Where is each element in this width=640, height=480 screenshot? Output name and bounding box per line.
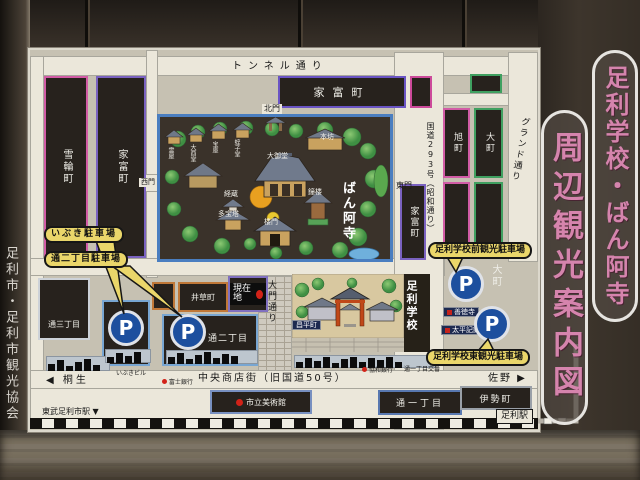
street-label-route293: 国道293号（昭和通り）	[426, 122, 434, 292]
museum-marker-icon	[236, 399, 243, 406]
parking-icon-school-front: P	[448, 266, 484, 302]
block-small-green-top	[470, 74, 502, 93]
parking-icon-ibuki: P	[108, 310, 144, 346]
direction-kiryu: ◀ 桐生	[46, 376, 89, 386]
current-location-dot-icon	[256, 290, 263, 299]
district-label-yadomi-right: 家富町	[409, 206, 418, 239]
temple-label-hoko: 宝庫	[211, 141, 217, 153]
jr-station-label: 足利駅	[496, 409, 533, 424]
temple-marker-icon	[447, 310, 452, 315]
district-label-tori1: 通一丁目	[396, 396, 444, 409]
ibuki-building-label: いぶきビル	[116, 371, 146, 377]
zentokuji-label: 善徳寺	[454, 308, 475, 316]
parking-symbol: P	[459, 272, 474, 296]
temple-label-kyozo: 経蔵	[224, 189, 238, 199]
block-small-orange	[152, 282, 175, 310]
block-igusa-cho: 井草町	[178, 282, 228, 312]
landmark-marker-icon	[445, 328, 450, 333]
temple-name-label: ばん阿寺	[341, 181, 354, 241]
temple-illustration	[160, 117, 390, 259]
cityscape-strip	[166, 350, 258, 364]
direction-sano: 佐野 ▶	[488, 374, 527, 384]
kyowa-bank-text: 協和銀行	[369, 367, 393, 374]
plank-gap	[298, 0, 301, 50]
kyowa-bank-label: 協和銀行	[362, 367, 393, 374]
title-pill-sub: 周辺観光案内図	[541, 110, 588, 425]
district-label-yadomi-top: 家富町	[314, 84, 371, 100]
koban-label: 通一丁目交番	[404, 367, 440, 373]
plank-gap	[85, 0, 88, 50]
district-label-yukiwa: 雪輪町	[61, 149, 71, 185]
parking-symbol: P	[485, 312, 500, 336]
district-label-igusa: 井草町	[191, 292, 215, 303]
parking-icon-school-east: P	[474, 306, 510, 342]
parking-icon-tori2: P	[170, 314, 206, 350]
cityscape-strip	[46, 356, 110, 371]
callout-tori2-parking: 通二丁目駐車場	[44, 251, 128, 268]
temple-label-belfry: 鐘楼	[308, 187, 322, 197]
school-name-label: 足利学校	[406, 280, 417, 346]
temple-precinct-bannaji: ばん阿寺 本坊 大御堂 鐘楼 経蔵 多宝塔 楼門 霊屋 大酉堂 宝庫 蛭子堂	[157, 114, 393, 262]
signboard-photo: 足利市・足利市観光協会 トンネル通り 国道293号（昭和通り） グランド通り 大…	[0, 0, 640, 480]
block-asahi-cho: 旭町	[443, 108, 470, 178]
zentokuji-chip: 善徳寺	[443, 307, 479, 317]
district-label-yadomi-left: 家富町	[116, 149, 126, 185]
street-label-chuo: 中央商店街（旧国道50号）	[198, 374, 347, 384]
temple-label-tahoto: 多宝塔	[218, 209, 239, 219]
block-current-location: 現在地	[228, 276, 268, 312]
museum-label: 市立美術館	[246, 397, 286, 408]
plank-gap	[462, 0, 465, 50]
current-location-label: 現在地	[233, 285, 253, 303]
railway-line	[30, 418, 538, 429]
title-pill-main: 足利学校・ばん阿寺	[592, 50, 638, 322]
parking-symbol: P	[119, 316, 134, 340]
temple-label-romon: 楼門	[264, 217, 278, 227]
block-tori-3chome: 通三丁目	[38, 278, 90, 340]
sign-title-main: 足利学校・ばん阿寺	[603, 65, 627, 308]
temple-label-mitamaya: 霊屋	[167, 147, 173, 159]
temple-label-main-hall: 大御堂	[267, 151, 288, 161]
temple-label-hirukodo: 蛭子堂	[233, 139, 239, 157]
block-small-pink-top	[410, 76, 432, 108]
district-label-tori2: 通二丁目	[208, 331, 248, 344]
temple-label-otorido: 大酉堂	[189, 144, 195, 162]
wood-ledge-bottom	[0, 430, 640, 480]
bank-marker-icon	[362, 367, 367, 372]
bank-marker-icon	[162, 379, 167, 384]
parking-symbol: P	[181, 320, 196, 344]
publisher-vertical-text: 足利市・足利市観光協会	[4, 246, 17, 446]
callout-school-front-parking: 足利学校前観光駐車場	[428, 242, 532, 259]
gate-label-east: 東門	[396, 182, 412, 190]
block-tori-1chome: 通一丁目	[378, 390, 462, 415]
block-yadomi-cho-top: 家富町	[278, 76, 406, 108]
block-omachi: 大町	[474, 108, 503, 178]
block-ise-cho: 伊勢町	[460, 386, 532, 410]
school-block-ashikaga-gakko: 足利学校	[292, 274, 430, 352]
district-label-ise: 伊勢町	[479, 392, 512, 405]
district-label-shohei: 昌平町	[296, 321, 317, 329]
fuji-bank-label: 富士銀行	[162, 379, 193, 386]
block-city-museum: 市立美術館	[210, 390, 312, 414]
tobu-station-label: 東武足利市駅 ▼	[42, 408, 99, 416]
block-yadomi-cho-right: 家富町	[400, 184, 426, 260]
gate-label-west: 西門	[139, 178, 157, 187]
district-label-omachi: 大町	[484, 132, 493, 154]
sign-title-sub: 周辺観光案内図	[549, 131, 580, 404]
temple-label-hombo: 本坊	[320, 132, 334, 142]
current-location-marker: 現在地	[230, 283, 266, 305]
fuji-bank-text: 富士銀行	[169, 379, 193, 386]
district-label-omachi-east: 大町	[490, 264, 500, 310]
district-label-tori3: 通三丁目	[48, 319, 80, 330]
cityscape-strip	[105, 349, 151, 363]
shohei-cho-chip: 昌平町	[292, 320, 321, 330]
callout-school-east-parking: 足利学校東観光駐車場	[426, 349, 530, 366]
gate-label-north: 北門	[262, 104, 282, 114]
district-label-asahi: 旭町	[452, 132, 461, 154]
street-label-tunnel: トンネル通り	[232, 62, 328, 72]
callout-ibuki-parking: いぶき駐車場	[44, 226, 124, 243]
